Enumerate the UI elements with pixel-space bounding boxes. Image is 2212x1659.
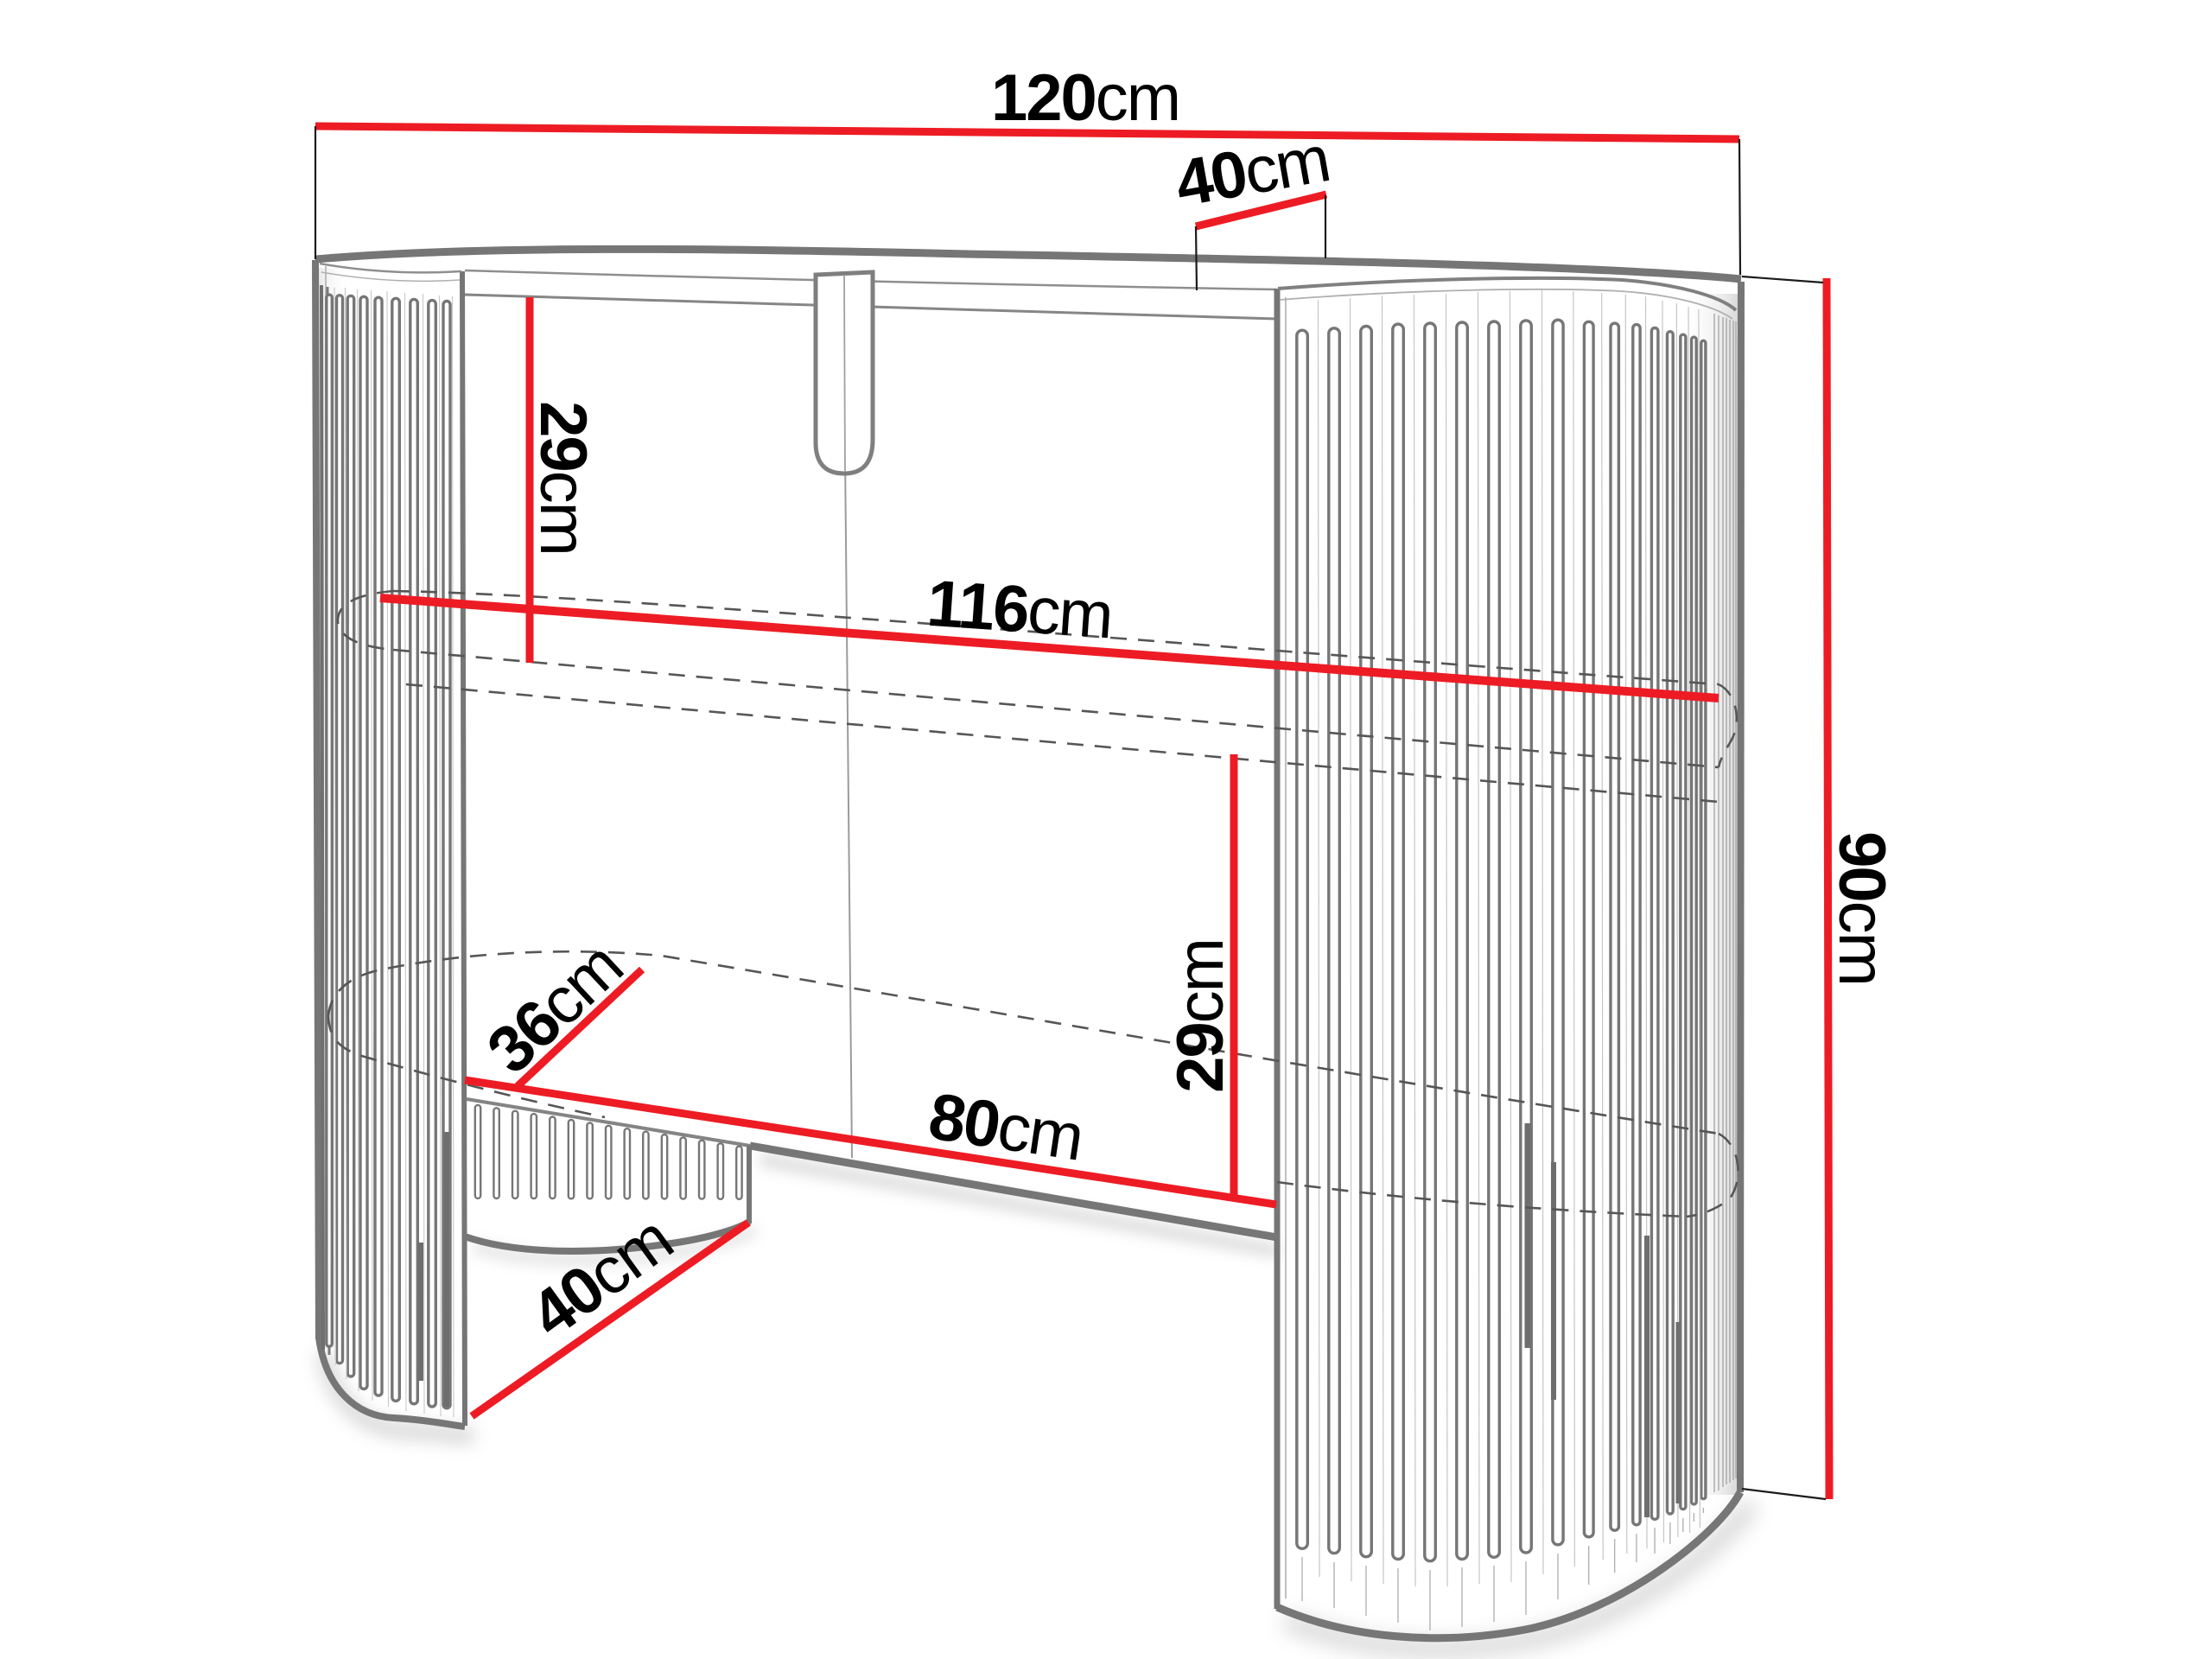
svg-text:29cm: 29cm [1164, 939, 1237, 1093]
svg-text:29cm: 29cm [526, 401, 600, 555]
svg-text:116cm: 116cm [925, 567, 1114, 653]
svg-text:90cm: 90cm [1825, 831, 1898, 985]
svg-text:120cm: 120cm [991, 61, 1179, 135]
